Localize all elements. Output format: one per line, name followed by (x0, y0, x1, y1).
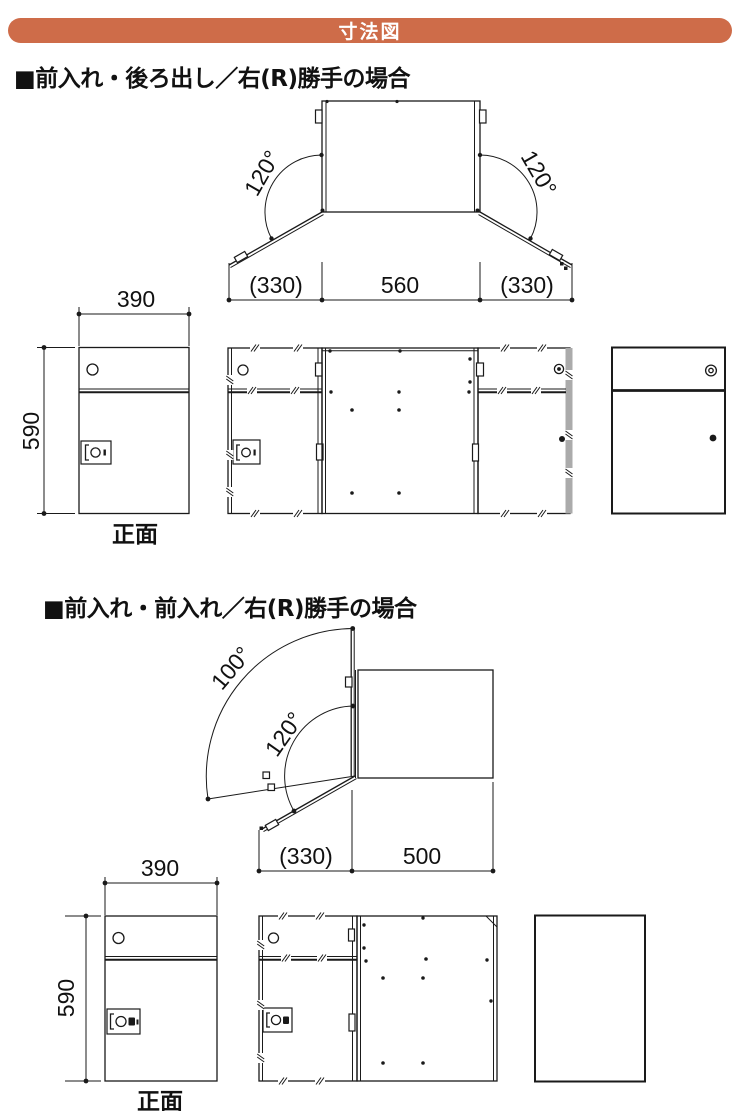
s2-front-keyhole (113, 933, 124, 944)
s2-plan-dimension: (330) 500 (257, 782, 496, 873)
s1-dim-left: (330) (249, 272, 303, 298)
s1-open-cabinet-interior (322, 348, 478, 514)
s1-open-left-door-panel (226, 345, 323, 518)
s2-open-door-panel (257, 913, 357, 1085)
s1-plan-right-door-open (476, 209, 573, 271)
s1-plan-left-latch (316, 110, 323, 123)
s2-open-cabinet-interior (357, 916, 497, 1081)
s1-angle-left-label: 120° (239, 146, 285, 200)
s2-width-label: 390 (141, 855, 179, 881)
s1-plan-right-latch (480, 110, 487, 123)
s1-rear-view (612, 348, 725, 514)
s1-front-caption: 正面 (112, 522, 158, 548)
s2-angle-outer-label: 100° (206, 641, 256, 694)
s1-front-views: 390 590 正面 (18, 286, 725, 548)
s2-plan-cabinet-body (358, 670, 493, 778)
s1-front-lock (81, 441, 111, 464)
dimension-diagram-page: 寸法図 ■前入れ・後ろ出し／右(R)勝手の場合 ■前入れ・前入れ／右(R)勝手の… (0, 0, 740, 1111)
s2-plan-door-closed (346, 626, 356, 776)
s1-front-width-dim: 390 (77, 286, 192, 346)
s1-dim-center: 560 (381, 272, 419, 298)
screw-holes (328, 349, 471, 495)
s2-front-views: 390 590 正面 (53, 855, 645, 1111)
s2-open-view (257, 913, 645, 1085)
s1-plan-dimension: (330) 560 (330) (227, 262, 575, 302)
s1-rearview-knob (710, 435, 717, 442)
s1-rear-knob (559, 436, 565, 442)
s2-side-view (535, 916, 645, 1082)
s2-angle-inner-label: 120° (260, 707, 309, 761)
s1-open-view (226, 345, 725, 518)
s2-front-lock (107, 1009, 140, 1034)
s2-front-caption: 正面 (137, 1089, 183, 1111)
s1-front-view (79, 348, 189, 514)
s1-open-right-door-panel (473, 345, 573, 518)
s1-plan-cabinet-body (322, 101, 480, 212)
s2-top-view: 100° 120° (330) 500 (206, 626, 496, 873)
s1-top-view: 120° 120° (330) 560 (330) (227, 100, 575, 303)
s1-height-label: 590 (18, 412, 44, 450)
s2-dim-left: (330) (279, 843, 333, 869)
s2-plan-door-open-100 (206, 772, 355, 801)
s1-plan-left-door-open (229, 209, 325, 268)
s1-width-label: 390 (117, 286, 155, 312)
s1-angle-right-label: 120° (516, 146, 562, 200)
s2-front-width-dim: 390 (103, 855, 220, 915)
s1-front-keyhole (87, 364, 98, 375)
s2-dim-right: 500 (403, 843, 441, 869)
s1-rearview-keyhole (706, 365, 717, 376)
s1-front-height-dim: 590 (18, 345, 75, 516)
screw-holes (362, 916, 492, 1064)
s1-dim-right: (330) (500, 272, 554, 298)
technical-drawing: 120° 120° (330) 560 (330) (0, 0, 740, 1111)
s2-height-label: 590 (53, 979, 79, 1017)
s2-front-view (105, 916, 217, 1081)
s2-front-height-dim: 590 (53, 914, 101, 1084)
